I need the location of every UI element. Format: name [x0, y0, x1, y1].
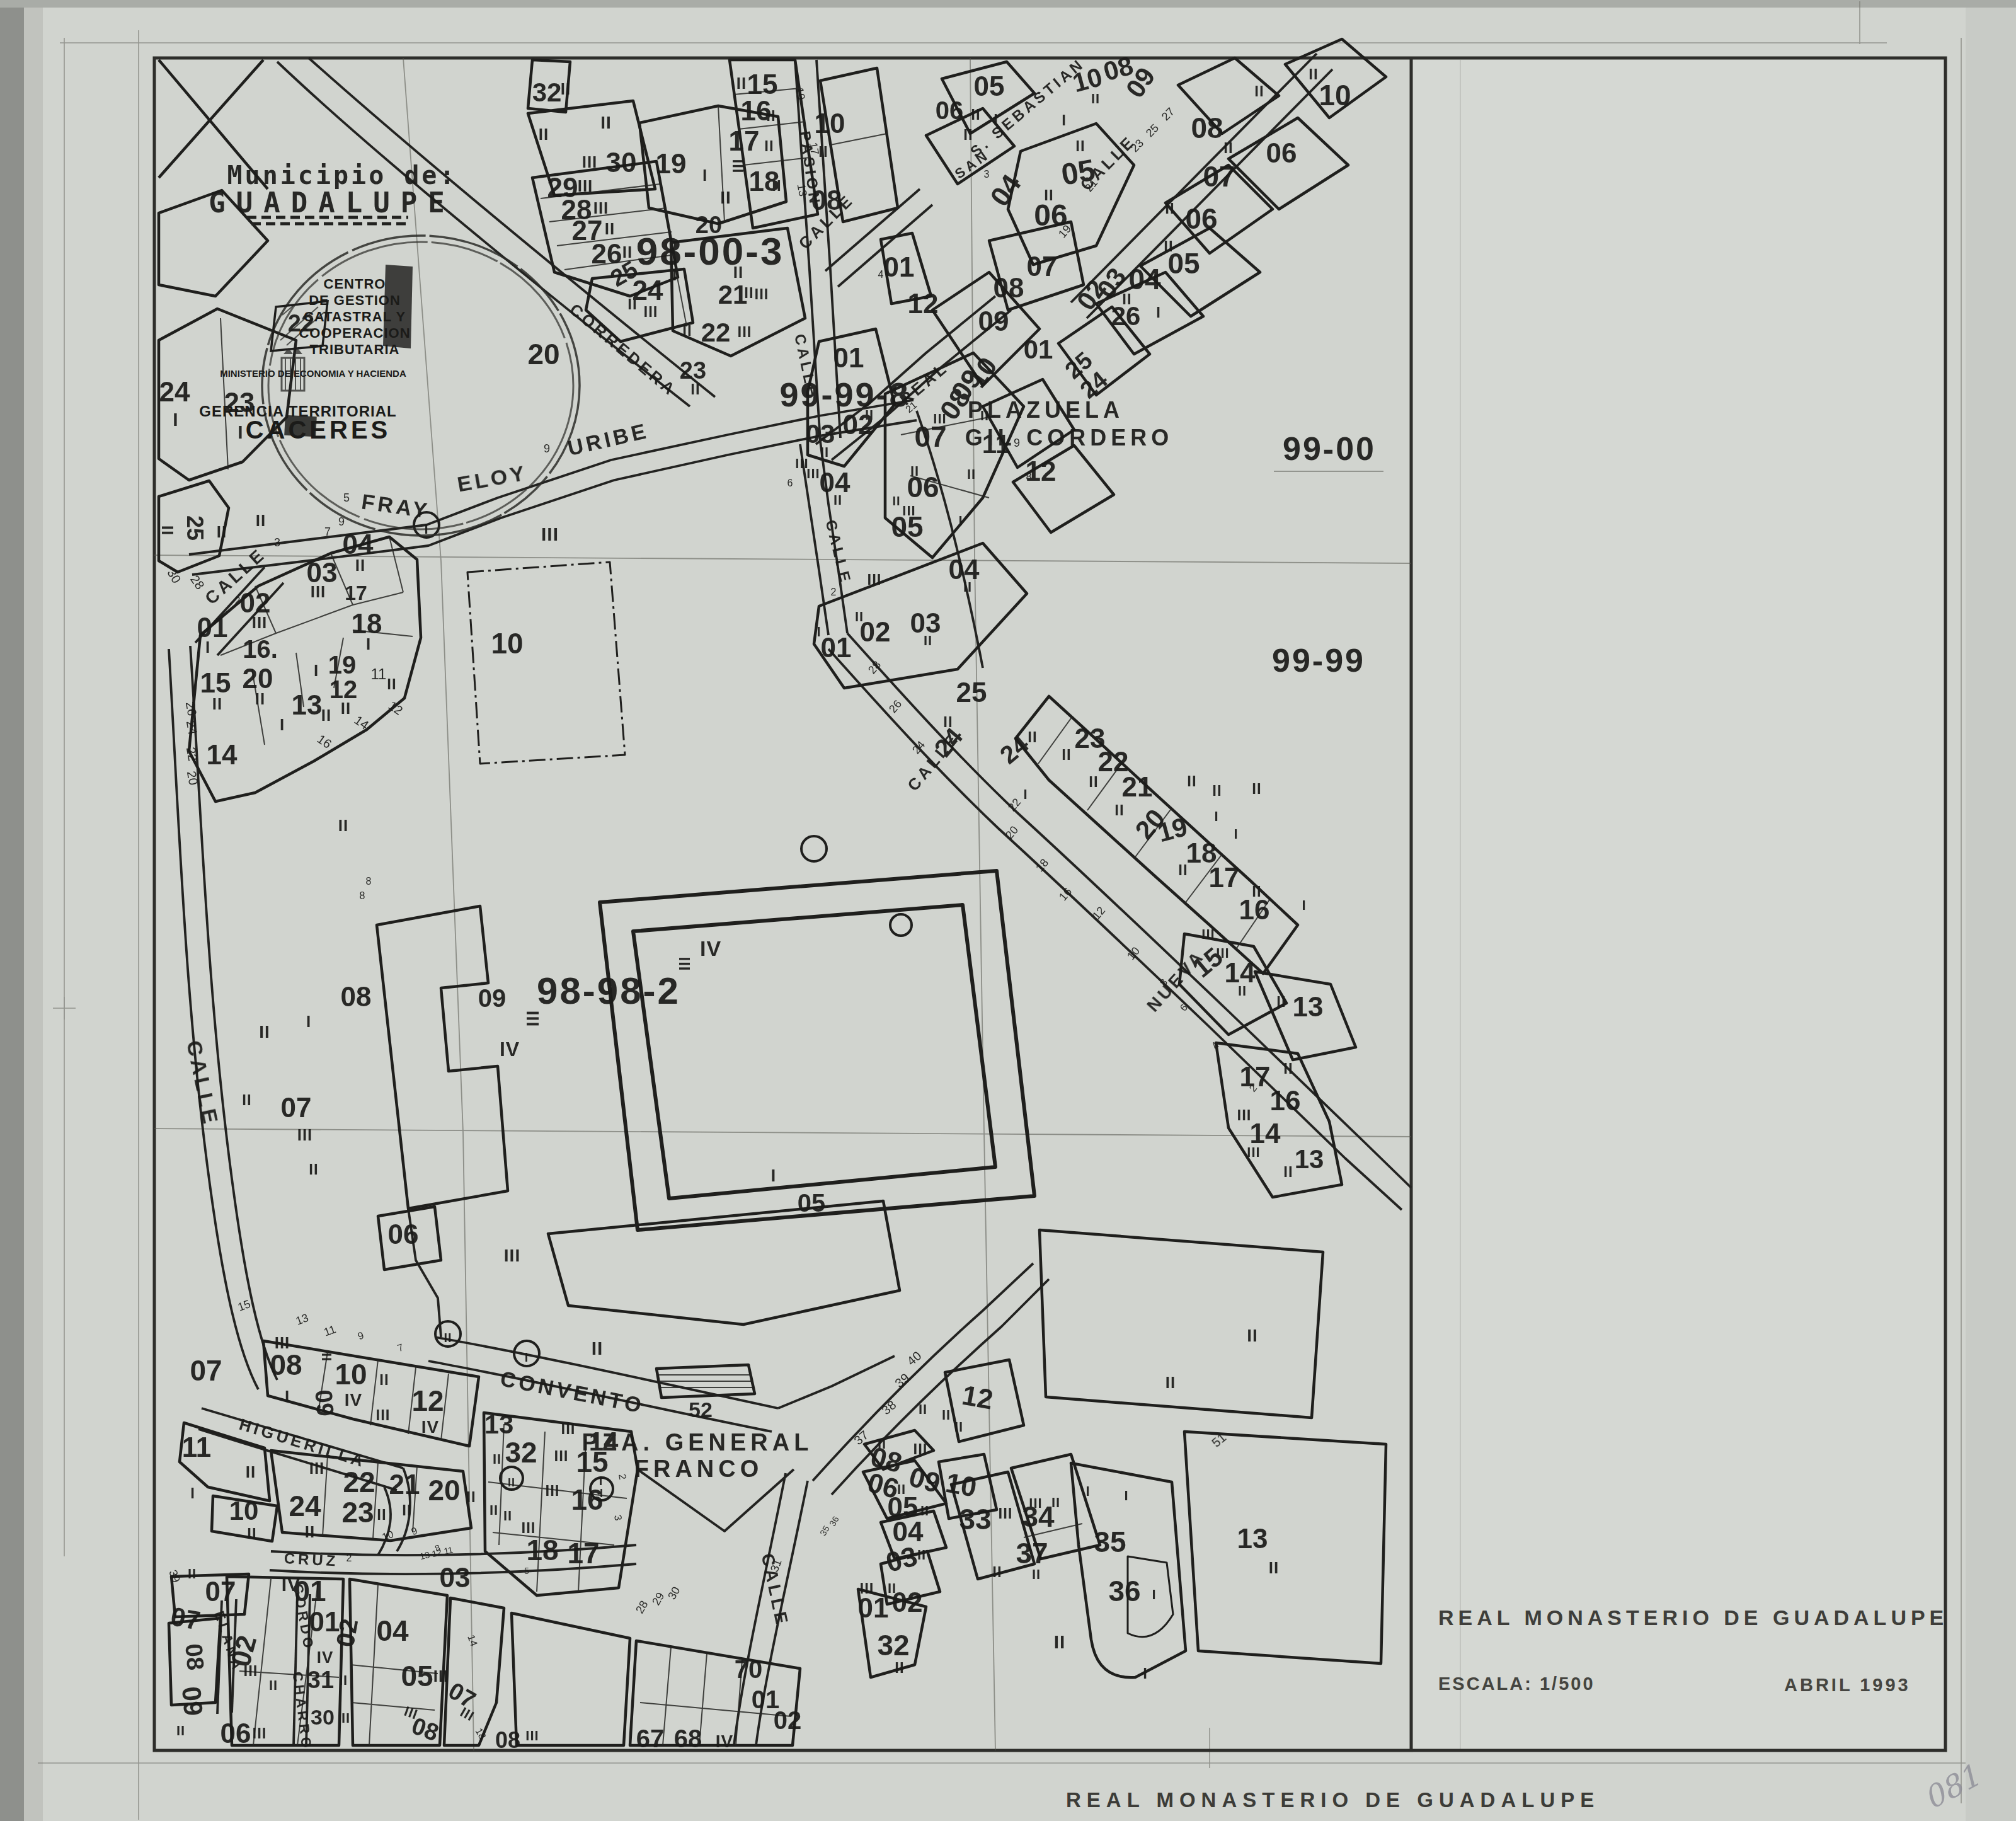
map-label: II	[833, 492, 842, 508]
map-label: III	[375, 1406, 390, 1423]
map-label: 8	[1026, 471, 1032, 482]
map-label: III	[913, 1440, 927, 1457]
map-label: II	[490, 1502, 498, 1518]
map-label: 2	[346, 1553, 352, 1563]
map-label: III	[676, 956, 693, 971]
map-label: 17	[345, 582, 367, 604]
map-label: 13	[1237, 1523, 1268, 1554]
map-label: 15	[576, 1445, 608, 1478]
map-label: FRANCO	[634, 1456, 764, 1482]
map-label: III	[1201, 926, 1215, 942]
map-label: 19	[656, 148, 687, 179]
map-label: 68	[674, 1725, 702, 1752]
scale-label: ESCALA: 1/500	[1438, 1674, 1595, 1694]
map-label: II	[1276, 993, 1286, 1010]
map-label: II	[1054, 1631, 1066, 1652]
map-label: II	[246, 1462, 256, 1481]
map-label: III	[545, 1482, 559, 1499]
map-label: III	[902, 503, 915, 519]
map-label: GUADALUPE	[209, 187, 455, 219]
map-label: I	[1214, 808, 1218, 824]
map-label: 22	[288, 310, 314, 336]
map-label: II	[466, 1488, 476, 1505]
map-label: IV	[500, 1038, 520, 1060]
map-label: 20	[527, 338, 559, 371]
map-label: III	[998, 1505, 1012, 1522]
map-label: II	[247, 1525, 256, 1542]
map-label: II	[503, 1508, 512, 1524]
map-label: 6	[787, 478, 793, 488]
map-label: III	[859, 1580, 874, 1597]
map-label: II	[963, 126, 973, 143]
map-label: 05	[974, 71, 1005, 101]
map-label: 09	[176, 1685, 209, 1717]
map-label: III	[275, 1333, 290, 1352]
map-label: II	[539, 125, 549, 144]
map-label: II	[1254, 83, 1264, 100]
map-label: II	[963, 579, 972, 595]
map-label: 09	[978, 306, 1009, 336]
map-label: 21	[718, 280, 748, 309]
map-label: 08	[180, 1643, 209, 1672]
map-label: II	[341, 699, 351, 718]
map-label: 17	[1209, 862, 1240, 893]
map-label: III	[754, 285, 769, 302]
map-label: II	[217, 522, 227, 541]
map-label: 35	[1094, 1525, 1126, 1558]
map-label: III	[243, 1662, 258, 1679]
map-label: II	[1032, 1566, 1041, 1582]
map-label: III	[561, 1420, 575, 1437]
map-label: I	[314, 661, 319, 680]
map-label: II	[1283, 1163, 1293, 1180]
map-label: I	[771, 1166, 777, 1185]
map-label: II	[1309, 66, 1318, 83]
map-label: 5	[524, 1566, 529, 1576]
map-label: 98-98-2	[537, 970, 680, 1012]
map-label: 11	[182, 1432, 212, 1462]
map-label: I	[1234, 826, 1238, 842]
map-label: GIL CORDERO	[965, 425, 1173, 451]
map-label: II	[971, 106, 980, 123]
sheet-bottom-title: REAL MONASTERIO DE GUADALUPE	[1066, 1788, 1600, 1812]
scan-left-edge	[0, 0, 24, 1821]
map-label: I	[280, 715, 285, 734]
map-label: I	[285, 1387, 290, 1406]
map-label: 20	[696, 212, 722, 238]
map-label: 32	[877, 1629, 909, 1662]
map-label: II	[592, 1338, 604, 1359]
scan-top-edge	[0, 0, 2016, 8]
map-label: II	[242, 1091, 251, 1108]
map-label: I	[1156, 304, 1161, 321]
map-label: II	[387, 675, 396, 692]
map-label: 07	[169, 1601, 203, 1635]
map-label: 22	[343, 1466, 375, 1498]
map-label: II	[355, 556, 365, 575]
map-label: 20	[185, 770, 201, 786]
map-label: III	[1247, 1144, 1260, 1160]
map-label: II	[1028, 728, 1037, 745]
map-label: I	[1085, 1483, 1090, 1499]
map-label: II	[305, 1522, 315, 1541]
map-label: III	[252, 1725, 266, 1742]
map-label: 23	[224, 387, 255, 418]
map-label: I	[525, 1350, 529, 1364]
map-label: III	[525, 1728, 539, 1743]
map-label: II	[878, 1436, 886, 1452]
map-label: II	[561, 79, 571, 98]
map-label: 70	[735, 1655, 763, 1683]
map-label: II	[1051, 1495, 1060, 1510]
map-label: 10	[1319, 79, 1351, 112]
map-label: II	[865, 407, 874, 423]
map-label: 08	[270, 1348, 302, 1381]
stamp-text: COOPERACION	[299, 325, 410, 341]
map-label: 08	[341, 981, 372, 1012]
map-label: II	[895, 1659, 904, 1676]
map-label: 09	[478, 984, 507, 1012]
map-label: III	[867, 571, 881, 588]
map-label: II	[1114, 801, 1124, 819]
map-label: 3	[984, 169, 990, 180]
map-label: 10	[229, 1496, 259, 1525]
map-label: II	[255, 689, 265, 708]
map-label: I	[1152, 1587, 1156, 1602]
map-label: IV	[716, 1732, 733, 1751]
map-label: I	[238, 422, 243, 442]
map-label: I	[424, 521, 428, 537]
map-label: III	[578, 176, 593, 195]
map-label: II	[269, 1677, 278, 1693]
map-label: I	[190, 1485, 195, 1502]
map-label: I	[1124, 1488, 1128, 1503]
map-label: 32	[505, 1436, 537, 1469]
map-label: I	[1062, 112, 1067, 129]
scanned-cadastral-sheet: CENTRODE GESTIONCATASTRAL YCOOPERACIONTR…	[0, 0, 2016, 1821]
map-label: II	[720, 188, 731, 207]
map-label: IV	[421, 1417, 439, 1437]
map-label: II	[1212, 782, 1222, 799]
map-label: 12	[411, 1384, 444, 1417]
map-label: II	[1165, 1373, 1176, 1392]
map-label: 15	[200, 667, 231, 698]
map-label: 05	[401, 1660, 433, 1692]
map-label: 09	[310, 1389, 339, 1418]
map-label: 17	[567, 1537, 599, 1570]
map-label: 26	[1111, 301, 1141, 331]
map-label: III	[523, 1011, 542, 1027]
map-label: 07	[1203, 160, 1235, 193]
map-label: 08	[1191, 112, 1223, 144]
map-label: II	[1165, 200, 1174, 217]
map-label: 16	[571, 1483, 603, 1516]
map-label: I	[1302, 897, 1306, 913]
map-label: 2	[235, 595, 241, 606]
map-label: III	[252, 613, 268, 632]
map-label: II	[1238, 983, 1247, 999]
map-label: III	[311, 582, 326, 601]
map-label: II	[690, 381, 700, 398]
map-label: 07	[1027, 251, 1058, 282]
map-label: 37	[1016, 1537, 1048, 1570]
map-label: 05	[798, 1189, 826, 1217]
map-label: II	[508, 1476, 515, 1489]
map-label: 32	[532, 78, 562, 107]
map-label: II	[309, 1161, 318, 1178]
map-label: 07	[205, 1576, 236, 1607]
map-label: 25	[182, 515, 208, 541]
stamp-text: MINISTERIO DE ECONOMIA Y HACIENDA	[220, 368, 406, 379]
map-label: II	[992, 1563, 1002, 1580]
map-label: I	[1143, 1665, 1148, 1682]
map-label: 20	[428, 1474, 460, 1507]
map-label: 5	[343, 491, 350, 504]
map-label: 30	[606, 147, 637, 178]
cadastral-map-canvas: CENTRODE GESTIONCATASTRAL YCOOPERACIONTR…	[0, 0, 2016, 1821]
map-label: 14	[207, 739, 238, 770]
map-label: II	[1178, 861, 1188, 878]
map-label: II	[600, 113, 612, 132]
map-label: 07	[281, 1092, 312, 1123]
map-label: I	[173, 409, 178, 430]
map-label: II	[605, 219, 615, 238]
map-label: 04	[343, 529, 374, 560]
map-label: II	[1089, 773, 1098, 790]
map-label: 22	[184, 746, 200, 762]
map-label: 52	[689, 1398, 713, 1422]
map-label: 23	[341, 1496, 374, 1529]
map-label: 13	[292, 689, 323, 720]
map-label: II	[444, 1331, 452, 1345]
map-label: 21	[389, 1469, 420, 1500]
map-label: 4	[878, 269, 884, 280]
stamp-text: TRIBUTARIA	[310, 342, 400, 357]
paper-right-edge	[1966, 0, 2016, 1821]
map-label: II	[764, 137, 774, 154]
map-label: 06	[1266, 137, 1297, 168]
map-label: II	[1062, 746, 1071, 763]
map-label: 17	[729, 125, 760, 156]
map-label: II	[924, 633, 932, 648]
scan-left-shadow	[24, 0, 43, 1821]
map-label: III	[737, 323, 752, 340]
map-label: 10	[335, 1358, 367, 1391]
map-label: 02	[860, 616, 891, 647]
map-label: 06	[388, 1219, 419, 1249]
stamp-text: CENTRO	[324, 276, 386, 292]
map-label: 21	[1122, 771, 1153, 802]
map-label: 18	[526, 1534, 558, 1566]
map-label: III	[309, 1459, 325, 1478]
map-label: II	[954, 1419, 963, 1435]
map-label: IV	[317, 1648, 334, 1667]
map-label: II	[319, 1353, 335, 1362]
map-label: II	[341, 1710, 350, 1726]
map-label: IV	[700, 936, 721, 960]
map-label: II	[919, 1401, 927, 1417]
map-label: II	[1187, 773, 1196, 790]
map-label: 99-99	[1272, 642, 1365, 679]
map-label: 16.	[243, 635, 278, 663]
map-label: II	[892, 494, 900, 508]
map-label: 06	[220, 1718, 251, 1749]
map-label: 67	[636, 1725, 665, 1752]
map-label: 99-99-8	[779, 376, 910, 413]
map-label: 13	[484, 1410, 514, 1439]
map-label: III	[433, 1667, 449, 1686]
map-label: 24	[289, 1490, 321, 1522]
map-label: 01	[1024, 335, 1053, 364]
map-label: II	[627, 296, 637, 313]
map-label: 17	[1240, 1061, 1271, 1092]
map-label: III	[806, 466, 820, 481]
map-label: I	[816, 624, 821, 640]
map-label: Municipio de:	[227, 161, 457, 190]
map-label: 24	[184, 720, 200, 736]
map-label: II	[377, 1506, 386, 1523]
map-label: 10	[491, 627, 523, 660]
map-label: 03	[440, 1562, 471, 1593]
map-label: I	[600, 1487, 604, 1500]
map-label: 01	[884, 251, 915, 282]
map-label: 06	[1185, 202, 1217, 235]
map-label: II	[158, 526, 177, 536]
map-label: 07	[190, 1354, 222, 1387]
map-label: II	[910, 463, 919, 479]
map-label: II	[766, 107, 776, 124]
map-label: 08	[994, 272, 1024, 303]
map-label: 9	[544, 442, 550, 455]
map-label: 99-00	[1283, 430, 1376, 467]
map-label: I	[205, 638, 210, 657]
map-label: II	[321, 706, 331, 725]
map-label: 19	[328, 651, 357, 679]
map-label: 02	[774, 1706, 802, 1734]
map-label: II	[402, 1502, 411, 1519]
map-label: III	[582, 152, 598, 171]
map-label: II	[1283, 1060, 1293, 1077]
map-label: II	[733, 263, 743, 282]
map-label: II	[917, 1547, 926, 1563]
map-label: I	[306, 1012, 311, 1031]
stamp-text: CATASTRAL Y	[304, 309, 406, 325]
map-label: II	[888, 1580, 896, 1596]
title-block-title: REAL MONASTERIO DE GUADALUPE	[1438, 1606, 1948, 1630]
map-label: III	[297, 1125, 313, 1144]
map-label: 06	[936, 96, 964, 124]
map-label: 01	[821, 632, 852, 663]
map-label: II	[1091, 91, 1100, 106]
map-label: 22	[701, 318, 731, 347]
stamp-text: DE GESTION	[309, 292, 401, 308]
map-label: 25	[956, 677, 987, 708]
map-label: II	[942, 1407, 951, 1423]
map-label: 08	[811, 185, 842, 215]
map-label: CRUZ	[283, 1549, 339, 1569]
map-label: II	[256, 511, 266, 530]
map-label: I	[1023, 786, 1028, 802]
map-label: IV	[345, 1390, 362, 1410]
map-label: 01	[833, 342, 864, 373]
map-label: 12	[959, 1379, 995, 1415]
map-label: II	[1164, 238, 1173, 255]
map-label: III	[541, 524, 559, 544]
map-label: 10	[943, 1467, 979, 1503]
right-margin-panel	[1413, 58, 1945, 1753]
map-label: 04	[376, 1614, 409, 1647]
map-label: II	[1252, 780, 1261, 797]
map-label: 08	[495, 1727, 520, 1753]
map-label: II	[176, 1723, 185, 1738]
map-label: 19	[793, 86, 808, 101]
map-label: II	[1252, 883, 1261, 900]
map-label: III	[554, 1447, 568, 1464]
map-label: 13	[1295, 1144, 1324, 1174]
map-label: 30	[311, 1705, 335, 1729]
map-label: III	[1029, 1495, 1042, 1511]
map-label: 36	[1108, 1575, 1140, 1607]
map-label: 01	[197, 612, 228, 643]
map-label: II	[339, 1672, 348, 1688]
map-label: II	[379, 1371, 389, 1388]
map-label: II	[259, 1022, 270, 1042]
date-label: ABRIL 1993	[1784, 1675, 1911, 1696]
map-label: I	[702, 166, 707, 185]
map-label: II	[338, 816, 348, 835]
map-label: I	[599, 1474, 604, 1488]
map-label: II	[772, 177, 781, 194]
map-label: 24	[159, 376, 190, 407]
map-label: 9	[338, 515, 345, 528]
map-label: 11	[371, 665, 387, 682]
map-label: 2	[831, 587, 837, 597]
map-label: II	[1075, 137, 1085, 154]
map-label: I	[366, 635, 371, 653]
map-label: 04	[1128, 263, 1161, 296]
map-label: II	[744, 284, 753, 301]
map-label: 7	[324, 526, 331, 538]
map-label: 3	[274, 536, 280, 549]
map-label: 16	[1270, 1085, 1301, 1116]
map-label: 12	[908, 288, 939, 319]
map-label: III	[643, 303, 658, 320]
map-label: III	[504, 1246, 520, 1265]
map-label: 02	[331, 1617, 363, 1649]
stamp-text: CACERES	[246, 416, 391, 444]
map-label: II	[212, 694, 222, 713]
map-label: 31	[307, 1667, 334, 1693]
map-label: 13	[1293, 991, 1324, 1022]
map-label: II	[818, 143, 828, 160]
map-label: II	[855, 609, 864, 624]
map-label: II	[188, 1566, 197, 1582]
map-label: 33	[959, 1503, 991, 1536]
map-label: 8	[360, 890, 365, 901]
map-label: II	[1269, 1558, 1279, 1577]
map-label: 10	[815, 108, 845, 139]
map-label: II	[967, 466, 976, 482]
map-label: I	[958, 513, 963, 529]
map-label: II	[736, 74, 747, 93]
map-label: II	[1223, 139, 1233, 156]
map-label: II	[820, 444, 829, 460]
map-label: I	[672, 265, 677, 284]
map-label: II	[682, 322, 692, 339]
map-label: 8	[366, 876, 372, 887]
map-label: II	[1044, 187, 1053, 204]
map-label: 26	[183, 701, 200, 717]
